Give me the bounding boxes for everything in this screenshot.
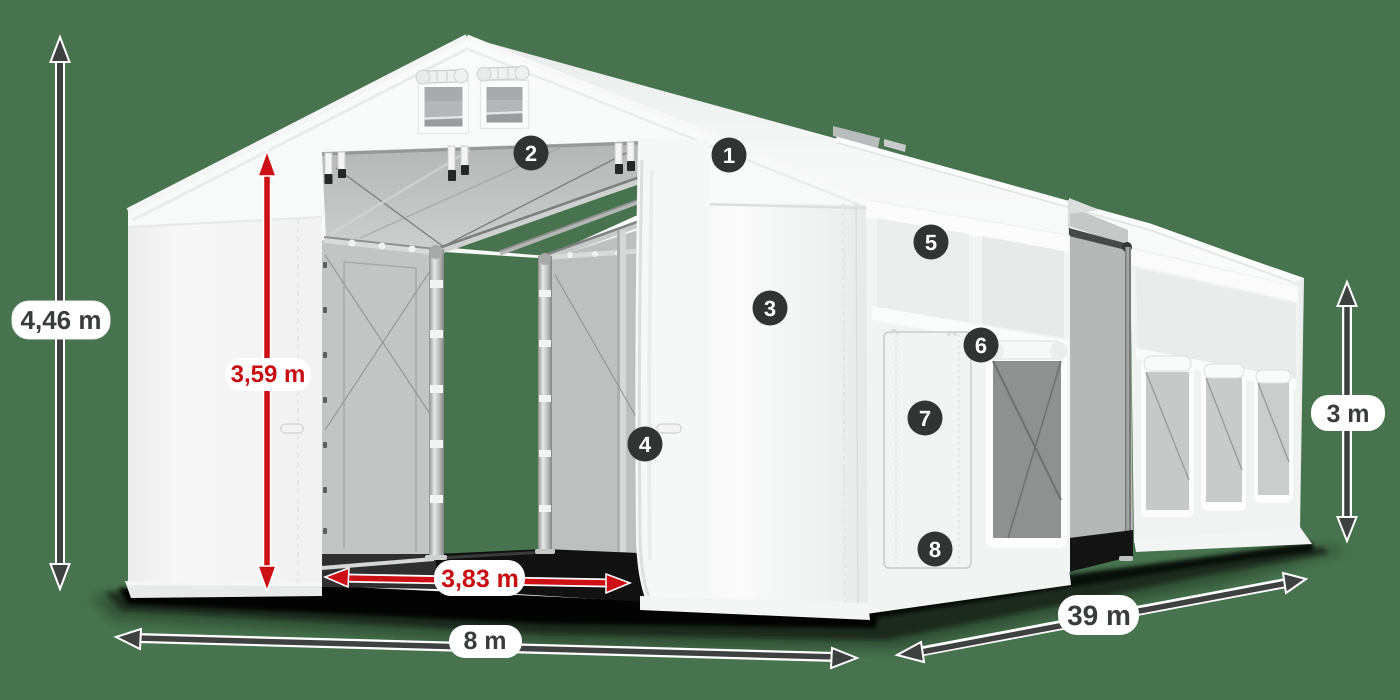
svg-text:8: 8 (929, 537, 941, 562)
svg-text:3,83 m: 3,83 m (441, 565, 519, 593)
svg-text:2: 2 (525, 141, 537, 166)
svg-text:1: 1 (723, 143, 735, 168)
svg-text:3: 3 (764, 296, 776, 321)
svg-text:3 m: 3 m (1326, 400, 1369, 428)
svg-text:4,46 m: 4,46 m (21, 305, 102, 335)
svg-text:39 m: 39 m (1067, 600, 1131, 631)
svg-text:3,59 m: 3,59 m (231, 361, 306, 388)
svg-text:8 m: 8 m (463, 627, 506, 655)
svg-text:5: 5 (925, 230, 937, 255)
svg-text:7: 7 (919, 406, 931, 431)
svg-text:6: 6 (975, 333, 987, 358)
svg-text:4: 4 (639, 432, 652, 457)
